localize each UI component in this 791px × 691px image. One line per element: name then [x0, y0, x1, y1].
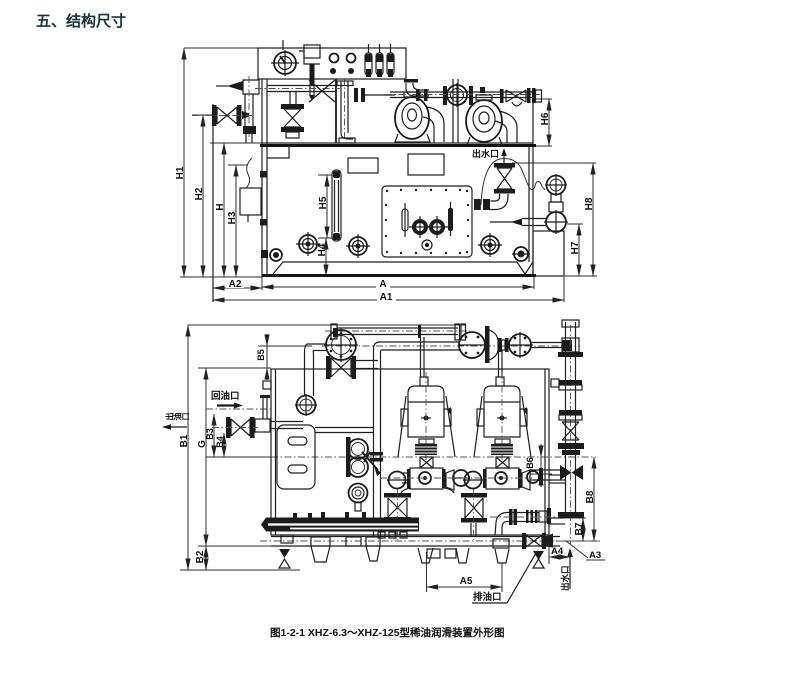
- svg-text:排油口: 排油口: [473, 591, 502, 603]
- svg-text:出水口: 出水口: [560, 565, 570, 591]
- svg-text:H3: H3: [227, 211, 238, 224]
- svg-text:A3: A3: [589, 550, 601, 561]
- svg-text:B8: B8: [585, 490, 596, 503]
- svg-text:H7: H7: [570, 241, 581, 254]
- svg-text:A4: A4: [551, 546, 564, 557]
- svg-text:B6: B6: [525, 457, 535, 469]
- svg-text:出水口: 出水口: [472, 148, 499, 159]
- svg-text:B7: B7: [574, 522, 585, 535]
- svg-text:出油口: 出油口: [165, 413, 191, 421]
- svg-text:H8: H8: [584, 197, 595, 210]
- svg-text:A: A: [379, 279, 386, 290]
- svg-text:H2: H2: [194, 187, 205, 200]
- svg-text:B2: B2: [195, 550, 206, 563]
- svg-text:图1-2-1 XHZ-6.3～XHZ-125型稀油润滑装置: 图1-2-1 XHZ-6.3～XHZ-125型稀油润滑装置外形图: [270, 626, 505, 639]
- svg-text:A1: A1: [380, 292, 393, 303]
- svg-text:H5: H5: [318, 196, 329, 209]
- svg-text:H4: H4: [317, 243, 328, 256]
- svg-text:A2: A2: [229, 279, 242, 290]
- svg-text:五、结构尺寸: 五、结构尺寸: [36, 12, 126, 30]
- svg-text:B3: B3: [205, 428, 215, 440]
- svg-text:H: H: [215, 203, 226, 210]
- svg-text:G: G: [197, 440, 208, 448]
- svg-text:A5: A5: [460, 576, 473, 587]
- svg-text:H1: H1: [175, 166, 186, 179]
- svg-text:回油口: 回油口: [211, 390, 240, 402]
- svg-text:H6: H6: [540, 112, 551, 125]
- svg-text:B5: B5: [256, 349, 266, 361]
- svg-text:B1: B1: [179, 434, 190, 447]
- svg-text:B4: B4: [215, 436, 225, 448]
